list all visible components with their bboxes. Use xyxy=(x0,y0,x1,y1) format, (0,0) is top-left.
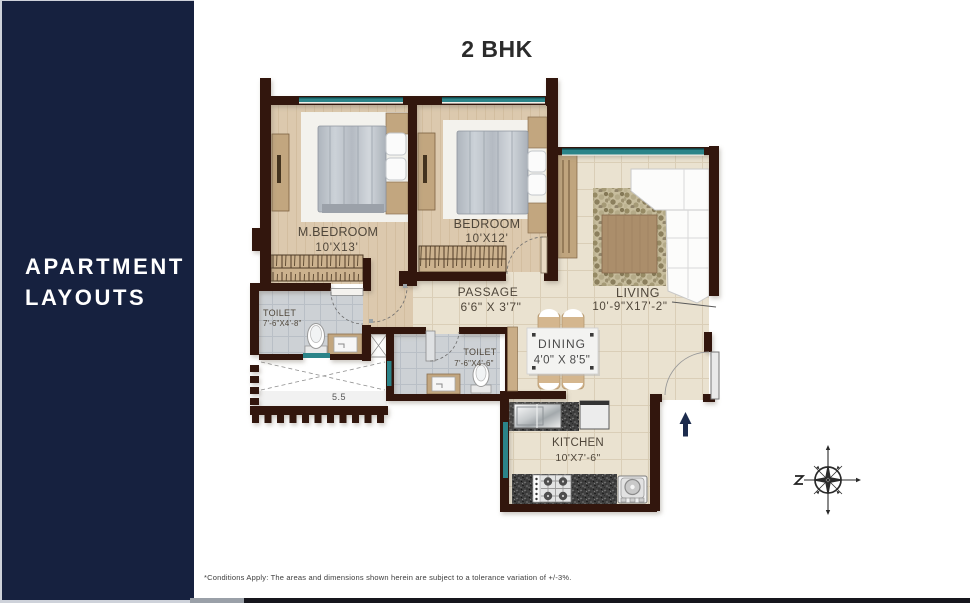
svg-text:10'X12': 10'X12' xyxy=(465,233,508,245)
svg-text:M.BEDROOM: M.BEDROOM xyxy=(298,225,378,239)
svg-text:LIVING: LIVING xyxy=(616,286,660,300)
svg-text:7'-6"X4'-6": 7'-6"X4'-6" xyxy=(454,359,493,368)
svg-text:5.5: 5.5 xyxy=(332,392,346,402)
svg-text:10'X13': 10'X13' xyxy=(315,242,358,254)
svg-text:7'-6"X4'-8": 7'-6"X4'-8" xyxy=(263,319,301,328)
svg-text:6'6" X 3'7": 6'6" X 3'7" xyxy=(460,300,521,314)
svg-text:BEDROOM: BEDROOM xyxy=(454,217,521,231)
svg-text:DINING: DINING xyxy=(538,337,586,351)
svg-text:10'-9"X17'-2": 10'-9"X17'-2" xyxy=(592,301,667,313)
svg-text:4'0" X 8'5": 4'0" X 8'5" xyxy=(534,355,591,367)
svg-text:TOILET: TOILET xyxy=(463,347,496,357)
svg-text:10'X7'-6": 10'X7'-6" xyxy=(555,452,600,464)
svg-text:KITCHEN: KITCHEN xyxy=(552,437,604,449)
svg-text:TOILET: TOILET xyxy=(263,308,296,318)
svg-text:PASSAGE: PASSAGE xyxy=(458,285,519,299)
